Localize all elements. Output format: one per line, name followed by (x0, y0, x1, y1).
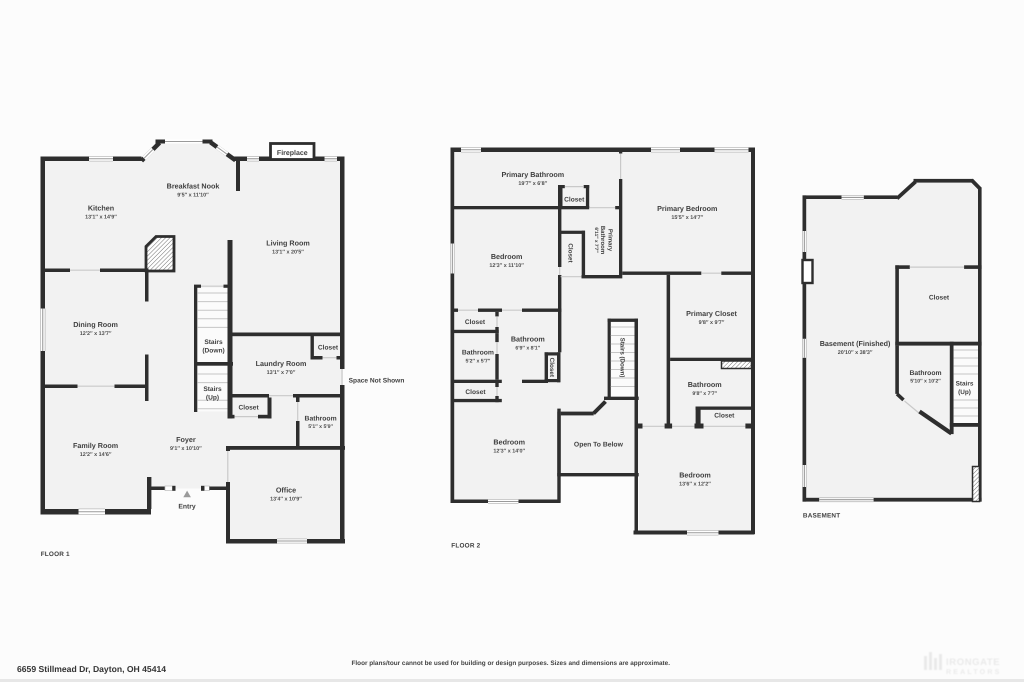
svg-text:Bedroom: Bedroom (679, 471, 711, 480)
svg-text:(Up): (Up) (958, 389, 971, 396)
svg-text:FLOOR 2: FLOOR 2 (451, 543, 480, 550)
svg-text:Closet: Closet (548, 358, 555, 378)
svg-text:Dining Room: Dining Room (73, 320, 118, 329)
svg-text:Closet: Closet (239, 405, 260, 412)
svg-text:Floor plans/tour cannot be use: Floor plans/tour cannot be used for buil… (352, 660, 671, 667)
svg-text:Bathroom: Bathroom (462, 350, 494, 357)
svg-text:Closet: Closet (929, 294, 950, 301)
svg-text:13′1″ x 7′0″: 13′1″ x 7′0″ (267, 370, 296, 376)
svg-text:9′8″ x 9′7″: 9′8″ x 9′7″ (699, 320, 725, 326)
svg-text:12′2″ x 13′7″: 12′2″ x 13′7″ (80, 331, 112, 337)
svg-text:Closet: Closet (566, 243, 573, 263)
svg-text:Stairs: Stairs (956, 381, 974, 388)
svg-text:9′5″ x 11′10″: 9′5″ x 11′10″ (177, 193, 209, 199)
svg-text:Closet: Closet (714, 413, 735, 420)
svg-text:Closet: Closet (465, 319, 486, 326)
svg-text:5′10″ x 10′2″: 5′10″ x 10′2″ (910, 379, 941, 385)
svg-text:Bedroom: Bedroom (493, 438, 525, 447)
svg-text:9′1″ x 10′10″: 9′1″ x 10′10″ (170, 446, 202, 452)
svg-text:Bathroom: Bathroom (688, 380, 722, 389)
svg-text:Closet: Closet (465, 389, 486, 396)
svg-text:(Up): (Up) (206, 394, 219, 401)
svg-text:Primary Bedroom: Primary Bedroom (657, 204, 717, 213)
svg-text:Basement (Finished): Basement (Finished) (820, 339, 891, 348)
svg-text:Foyer: Foyer (176, 435, 196, 444)
svg-text:FLOOR 1: FLOOR 1 (41, 551, 70, 558)
svg-text:Stairs: Stairs (204, 339, 223, 346)
svg-text:Closet: Closet (318, 345, 339, 352)
svg-text:Stairs (Down): Stairs (Down) (619, 338, 626, 378)
svg-text:12′3″ x 14′0″: 12′3″ x 14′0″ (493, 449, 525, 455)
svg-text:6′11″ x 7′7″: 6′11″ x 7′7″ (593, 227, 599, 253)
svg-text:Bathroom: Bathroom (599, 226, 606, 254)
svg-text:Laundry Room: Laundry Room (256, 359, 307, 368)
svg-text:IRONGATE: IRONGATE (946, 657, 1000, 668)
svg-text:15′5″ x 14′7″: 15′5″ x 14′7″ (671, 215, 703, 221)
svg-text:Entry: Entry (178, 504, 196, 511)
svg-text:Closet: Closet (564, 196, 585, 203)
svg-text:19′7″ x 6′8″: 19′7″ x 6′8″ (518, 181, 547, 187)
svg-text:(Down): (Down) (202, 347, 224, 354)
svg-text:5′2″ x 5′7″: 5′2″ x 5′7″ (466, 359, 491, 365)
svg-text:BASEMENT: BASEMENT (803, 513, 840, 520)
svg-text:Office: Office (276, 486, 296, 495)
svg-text:Stairs: Stairs (203, 386, 222, 393)
svg-text:Primary Closet: Primary Closet (686, 309, 737, 318)
svg-text:12′2″ x 14′6″: 12′2″ x 14′6″ (80, 452, 112, 458)
svg-text:Bedroom: Bedroom (491, 252, 523, 261)
svg-text:9′8″ x 7′7″: 9′8″ x 7′7″ (692, 391, 717, 397)
svg-text:13′1″ x 20′5″: 13′1″ x 20′5″ (272, 250, 304, 256)
svg-text:6659 Stillmead Dr, Dayton, OH: 6659 Stillmead Dr, Dayton, OH 45414 (17, 664, 166, 674)
svg-text:REALTORS: REALTORS (946, 669, 1001, 676)
svg-text:13′1″ x 14′9″: 13′1″ x 14′9″ (85, 215, 117, 221)
svg-text:Bathroom: Bathroom (511, 335, 545, 344)
svg-text:6′9″ x 8′1″: 6′9″ x 8′1″ (515, 345, 540, 351)
svg-text:13′6″ x 12′2″: 13′6″ x 12′2″ (679, 482, 711, 488)
svg-text:Open To Below: Open To Below (574, 442, 624, 449)
svg-text:Breakfast Nook: Breakfast Nook (167, 182, 220, 191)
svg-text:5′1″ x 5′9″: 5′1″ x 5′9″ (308, 424, 333, 430)
svg-text:Bathroom: Bathroom (909, 370, 941, 377)
svg-text:Family Room: Family Room (73, 441, 118, 450)
svg-text:Living Room: Living Room (266, 239, 310, 248)
svg-text:Space Not Shown: Space Not Shown (349, 378, 405, 385)
svg-text:20′10″ x 38′3″: 20′10″ x 38′3″ (838, 350, 873, 356)
svg-text:Kitchen: Kitchen (88, 204, 114, 213)
svg-text:Primary Bathroom: Primary Bathroom (501, 170, 564, 179)
svg-text:13′4″ x 10′9″: 13′4″ x 10′9″ (270, 497, 302, 503)
svg-text:Primary: Primary (606, 229, 613, 252)
svg-text:Bathroom: Bathroom (305, 416, 337, 423)
svg-text:12′3″ x 11′10″: 12′3″ x 11′10″ (489, 263, 524, 269)
svg-text:Fireplace: Fireplace (277, 149, 308, 157)
